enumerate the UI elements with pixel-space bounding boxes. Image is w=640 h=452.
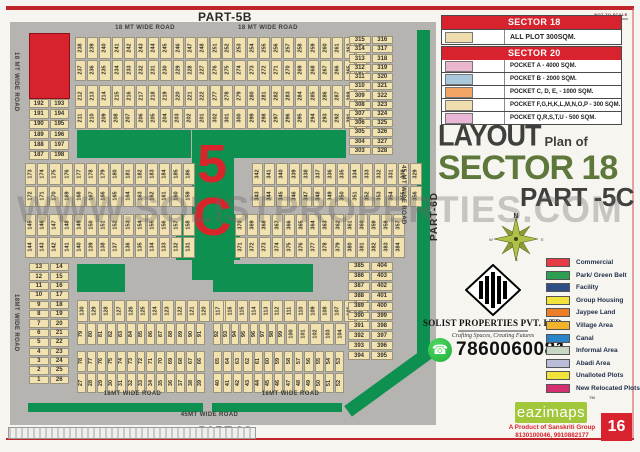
area-label: New Relocated Plots — [576, 385, 640, 392]
plot-142: 142 — [49, 237, 60, 259]
plot-149: 149 — [74, 214, 85, 236]
plot-372: 372 — [247, 237, 258, 259]
sector-part-code-top: 5 — [183, 138, 241, 191]
plot-121: 121 — [187, 300, 198, 322]
plot-279: 279 — [234, 85, 245, 107]
plot-90: 90 — [186, 323, 195, 345]
plot-309: 309 — [349, 91, 371, 99]
area-label: Canal — [576, 335, 594, 342]
plot-286: 286 — [320, 85, 331, 107]
plot-255: 255 — [259, 37, 270, 59]
plot-123: 123 — [162, 300, 173, 322]
pocket-row: POCKET C, D, E, - 1000 SQM. — [442, 85, 621, 98]
plot-146: 146 — [37, 214, 48, 236]
company-subline — [458, 330, 528, 332]
plot-334: 334 — [350, 163, 361, 185]
plot-348: 348 — [313, 186, 324, 208]
plot-76: 76 — [97, 351, 106, 372]
area-legend-row: Informal Area — [546, 346, 640, 355]
plot-38: 38 — [186, 373, 195, 394]
plot-404: 404 — [371, 262, 393, 271]
plot-114: 114 — [249, 300, 260, 322]
plot-377: 377 — [308, 237, 319, 259]
plot-73: 73 — [127, 351, 136, 372]
plot-34: 34 — [146, 373, 155, 394]
plot-361: 361 — [345, 214, 356, 236]
plot-247: 247 — [185, 37, 196, 59]
plot-395: 395 — [371, 351, 393, 360]
sector-part-code-bottom: C — [183, 191, 241, 244]
plot-block-E: 1731741751761771781791801811821831841851… — [25, 163, 170, 207]
plot-43: 43 — [243, 373, 252, 394]
plot-block-D: 2772782792802812822832842852862872882893… — [210, 85, 333, 129]
plot-65: 65 — [213, 351, 222, 372]
plot-346: 346 — [289, 186, 300, 208]
plot-block-F: 3423413403393383373363353343333323313303… — [252, 163, 393, 207]
plot-231: 231 — [148, 60, 159, 82]
plot-251: 251 — [210, 37, 221, 59]
all-plot-swatch — [445, 32, 473, 43]
green-belt — [228, 130, 346, 158]
plot-88: 88 — [166, 323, 175, 345]
plot-25: 25 — [50, 366, 70, 374]
plot-31: 31 — [117, 373, 126, 394]
plot-236: 236 — [87, 60, 98, 82]
pocket-swatch — [445, 61, 473, 72]
area-swatch — [546, 258, 570, 267]
road-label: 18MT WIDE ROAD — [13, 294, 19, 372]
plot-328: 328 — [372, 147, 394, 155]
plot-343: 343 — [252, 186, 263, 208]
plot-241: 241 — [112, 37, 123, 59]
plot-189: 189 — [29, 130, 49, 139]
area-legend-row: Abadi Area — [546, 359, 640, 368]
plot-187: 187 — [29, 151, 49, 160]
pocket-row: POCKET F,G,H,K,L,M,N,O,P - 300 SQM. — [442, 98, 621, 111]
plot-10: 10 — [29, 291, 49, 299]
area-legend-row: Village Area — [546, 321, 640, 330]
plot-316: 316 — [372, 36, 394, 44]
plot-75: 75 — [107, 351, 116, 372]
plot-363: 363 — [320, 214, 331, 236]
plot-127: 127 — [114, 300, 125, 322]
plot-134: 134 — [147, 237, 158, 259]
plot-274: 274 — [234, 60, 245, 82]
plot-148: 148 — [62, 214, 73, 236]
page-number-badge: 16 — [601, 413, 632, 441]
pocket-swatch — [445, 100, 473, 111]
road-label: 18 MT WIDE ROAD — [13, 52, 19, 130]
area-label: Group Housing — [576, 297, 623, 304]
plot-77: 77 — [87, 351, 96, 372]
plot-168: 168 — [74, 186, 85, 208]
pocket-row: POCKET B - 2000 SQM. — [442, 72, 621, 85]
plot-74: 74 — [117, 351, 126, 372]
plot-14: 14 — [50, 263, 70, 271]
plot-344: 344 — [264, 186, 275, 208]
area-legend-row: Canal — [546, 334, 640, 343]
plot-338: 338 — [301, 163, 312, 185]
all-plot-label: ALL PLOT 300SQM. — [505, 34, 621, 41]
plot-164: 164 — [123, 186, 134, 208]
layout-sheet: PART-5B NOT TO SCALE 5 C 238239240241242… — [0, 0, 640, 452]
pocket-row: POCKET A - 4000 SQM. — [442, 60, 621, 72]
plot-298: 298 — [259, 108, 270, 130]
sector-part-code: 5 C — [183, 138, 241, 244]
plot-242: 242 — [124, 37, 135, 59]
plot-362: 362 — [333, 214, 344, 236]
plot-block-A: 2382392402412422432442452462472482492502… — [75, 37, 203, 81]
plot-block-G: 1451461471481491501511521531541551561571… — [25, 214, 170, 258]
plot-233: 233 — [124, 60, 135, 82]
plot-154: 154 — [135, 214, 146, 236]
plot-269: 269 — [295, 60, 306, 82]
plot-393: 393 — [348, 341, 370, 350]
plot-58: 58 — [284, 351, 293, 372]
plot-102: 102 — [310, 323, 321, 345]
plot-157: 157 — [171, 214, 182, 236]
plot-116: 116 — [225, 300, 236, 322]
whatsapp-icon: ☎ — [428, 338, 452, 362]
plot-136: 136 — [123, 237, 134, 259]
plot-140: 140 — [74, 237, 85, 259]
plot-16: 16 — [50, 282, 70, 290]
plot-295: 295 — [295, 108, 306, 130]
area-swatch — [546, 308, 570, 317]
plot-240: 240 — [99, 37, 110, 59]
plot-205: 205 — [148, 108, 159, 130]
plot-64: 64 — [223, 351, 232, 372]
plot-103: 103 — [323, 323, 334, 345]
plot-71: 71 — [146, 351, 155, 372]
plot-84: 84 — [127, 323, 136, 345]
plot-block-B: 2512522532542552562572582592602612622632… — [210, 37, 333, 81]
plot-261: 261 — [332, 37, 343, 59]
trademark-mark: TM — [589, 395, 595, 400]
plot-401: 401 — [371, 292, 393, 301]
plot-96: 96 — [250, 323, 258, 345]
plot-324: 324 — [372, 110, 394, 118]
plot-block-K: 7877767574737271706968676627282930313233… — [77, 351, 205, 393]
plot-174: 174 — [37, 163, 48, 185]
approval-stamp-strip — [8, 427, 256, 439]
plot-350: 350 — [337, 186, 348, 208]
plot-188: 188 — [29, 140, 49, 149]
plot-399: 399 — [371, 312, 393, 321]
plot-97: 97 — [259, 323, 267, 345]
plot-191: 191 — [29, 109, 49, 118]
plot-141: 141 — [62, 237, 73, 259]
area-label: Abadi Area — [576, 360, 610, 367]
plot-385: 385 — [348, 262, 370, 271]
plot-301: 301 — [222, 108, 233, 130]
plot-390: 390 — [348, 312, 370, 321]
plot-13: 13 — [29, 263, 49, 271]
plot-126: 126 — [126, 300, 137, 322]
area-label: Unalloted Plots — [576, 372, 623, 379]
plot-171: 171 — [37, 186, 48, 208]
plot-block-H: 3703693683673663653643633623613603593583… — [235, 214, 393, 258]
plot-303: 303 — [349, 147, 371, 155]
plot-1: 1 — [29, 376, 49, 384]
plot-302: 302 — [210, 108, 221, 130]
plot-165: 165 — [110, 186, 121, 208]
plot-387: 387 — [348, 282, 370, 291]
plot-326: 326 — [372, 128, 394, 136]
plot-7: 7 — [29, 319, 49, 327]
pocket-label: POCKET A - 4000 SQM. — [505, 63, 621, 69]
plot-129: 129 — [89, 300, 100, 322]
plot-198: 198 — [50, 151, 70, 160]
plot-161: 161 — [159, 186, 170, 208]
plot-281: 281 — [259, 85, 270, 107]
plot-192: 192 — [29, 99, 49, 108]
green-belt — [77, 264, 125, 292]
plot-62: 62 — [243, 351, 252, 372]
green-belt — [213, 264, 313, 292]
plot-124: 124 — [150, 300, 161, 322]
plot-190: 190 — [29, 120, 49, 129]
plot-400: 400 — [371, 302, 393, 311]
plot-59: 59 — [274, 351, 283, 372]
plot-273: 273 — [247, 60, 258, 82]
plot-212: 212 — [75, 85, 86, 107]
plot-267: 267 — [320, 60, 331, 82]
plot-11: 11 — [29, 282, 49, 290]
plot-329: 329 — [410, 163, 421, 185]
plot-35: 35 — [156, 373, 165, 394]
area-swatch — [546, 384, 570, 393]
plot-24: 24 — [50, 357, 70, 365]
plot-150: 150 — [86, 214, 97, 236]
plot-49: 49 — [304, 373, 313, 394]
plot-193: 193 — [50, 99, 70, 108]
plot-206: 206 — [136, 108, 147, 130]
area-swatch — [546, 359, 570, 368]
plot-92: 92 — [213, 323, 221, 345]
plot-53: 53 — [335, 351, 344, 372]
plot-388: 388 — [348, 292, 370, 301]
area-swatch — [546, 321, 570, 330]
plot-111: 111 — [284, 300, 295, 322]
plot-94: 94 — [231, 323, 239, 345]
plot-69: 69 — [166, 351, 175, 372]
plot-260: 260 — [320, 37, 331, 59]
plot-70: 70 — [156, 351, 165, 372]
plot-389: 389 — [348, 302, 370, 311]
plot-333: 333 — [362, 163, 373, 185]
plot-353: 353 — [374, 186, 385, 208]
plot-86: 86 — [146, 323, 155, 345]
plot-156: 156 — [159, 214, 170, 236]
plot-313: 313 — [349, 54, 371, 62]
title-sector: SECTOR 18 — [438, 151, 634, 185]
plot-245: 245 — [160, 37, 171, 59]
plot-52: 52 — [335, 373, 344, 394]
plot-67: 67 — [186, 351, 195, 372]
plot-219: 219 — [160, 85, 171, 107]
plot-220: 220 — [173, 85, 184, 107]
plot-5: 5 — [29, 338, 49, 346]
pocket-label: POCKET F,G,H,K,L,M,N,O,P - 300 SQM. — [505, 102, 621, 108]
plot-304: 304 — [349, 138, 371, 146]
plot-364: 364 — [308, 214, 319, 236]
plot-22: 22 — [50, 338, 70, 346]
company-block: SOLIST PROPERTIES PVT. LTD. Crafting Spa… — [423, 264, 563, 339]
plot-308: 308 — [349, 101, 371, 109]
plot-block-L: 6564636261605958575655545340414243444546… — [213, 351, 344, 393]
area-legend-row: Park/ Green Belt — [546, 271, 640, 280]
plot-217: 217 — [136, 85, 147, 107]
green-belt — [28, 403, 203, 412]
plot-135: 135 — [135, 237, 146, 259]
area-swatch — [546, 334, 570, 343]
plot-185: 185 — [171, 163, 182, 185]
plot-378: 378 — [320, 237, 331, 259]
company-name: SOLIST PROPERTIES PVT. LTD. — [423, 318, 563, 328]
plot-29: 29 — [97, 373, 106, 394]
plot-322: 322 — [372, 91, 394, 99]
plot-108: 108 — [320, 300, 331, 322]
plot-259: 259 — [308, 37, 319, 59]
area-legend-row: Commercial — [546, 258, 640, 267]
plot-120: 120 — [199, 300, 210, 322]
plot-15: 15 — [50, 272, 70, 280]
plot-276: 276 — [210, 60, 221, 82]
plot-332: 332 — [374, 163, 385, 185]
plot-307: 307 — [349, 110, 371, 118]
plot-19: 19 — [50, 310, 70, 318]
plot-95: 95 — [240, 323, 248, 345]
plot-155: 155 — [147, 214, 158, 236]
plot-63: 63 — [233, 351, 242, 372]
plot-36: 36 — [166, 373, 175, 394]
plot-325: 325 — [372, 119, 394, 127]
plot-93: 93 — [222, 323, 230, 345]
area-legend-row: Unalloted Plots — [546, 371, 640, 380]
plot-293: 293 — [320, 108, 331, 130]
plot-56: 56 — [304, 351, 313, 372]
plot-323: 323 — [372, 101, 394, 109]
plot-28: 28 — [87, 373, 96, 394]
plot-306: 306 — [349, 119, 371, 127]
plot-366: 366 — [284, 214, 295, 236]
plot-352: 352 — [362, 186, 373, 208]
plot-55: 55 — [315, 351, 324, 372]
plot-339: 339 — [289, 163, 300, 185]
plot-166: 166 — [98, 186, 109, 208]
plot-72: 72 — [137, 351, 146, 372]
plot-80: 80 — [87, 323, 96, 345]
plot-179: 179 — [98, 163, 109, 185]
plot-110: 110 — [296, 300, 307, 322]
plot-375: 375 — [284, 237, 295, 259]
title-plan-of: Plan of — [545, 134, 588, 149]
plot-47: 47 — [284, 373, 293, 394]
plot-183: 183 — [147, 163, 158, 185]
plot-203: 203 — [172, 108, 183, 130]
plot-113: 113 — [261, 300, 272, 322]
plot-197: 197 — [50, 140, 70, 149]
plot-256: 256 — [271, 37, 282, 59]
plot-139: 139 — [86, 237, 97, 259]
plot-258: 258 — [295, 37, 306, 59]
plot-337: 337 — [313, 163, 324, 185]
sector20-legend-table: SECTOR 20 POCKET A - 4000 SQM.POCKET B -… — [441, 46, 622, 125]
plot-312: 312 — [349, 64, 371, 72]
plot-194: 194 — [50, 109, 70, 118]
area-legend-row: Group Housing — [546, 296, 640, 305]
area-swatch — [546, 283, 570, 292]
plot-347: 347 — [301, 186, 312, 208]
plot-50: 50 — [315, 373, 324, 394]
plot-239: 239 — [87, 37, 98, 59]
plot-178: 178 — [86, 163, 97, 185]
plot-202: 202 — [184, 108, 195, 130]
plot-248: 248 — [197, 37, 208, 59]
plot-169: 169 — [62, 186, 73, 208]
plot-232: 232 — [136, 60, 147, 82]
plot-336: 336 — [325, 163, 336, 185]
plot-196: 196 — [50, 130, 70, 139]
plot-296: 296 — [283, 108, 294, 130]
plot-379: 379 — [333, 237, 344, 259]
plot-122: 122 — [175, 300, 186, 322]
title-block: LAYOUT Plan of SECTOR 18 PART -5C — [438, 122, 634, 210]
plot-173: 173 — [25, 163, 36, 185]
plot-403: 403 — [371, 272, 393, 281]
plot-130: 130 — [77, 300, 88, 322]
plot-layout-map: 5 C 238239240241242243244245246247248249… — [10, 22, 436, 425]
plot-252: 252 — [222, 37, 233, 59]
road-label: 18MT WIDE ROAD — [253, 391, 328, 397]
plot-327: 327 — [372, 138, 394, 146]
plot-195: 195 — [50, 120, 70, 129]
plot-78: 78 — [77, 351, 86, 372]
pocket-swatch — [445, 74, 473, 85]
road-label: 45 MT WIDE ROAD — [400, 165, 406, 243]
plot-382: 382 — [369, 237, 380, 259]
plot-341: 341 — [264, 163, 275, 185]
plot-82: 82 — [107, 323, 116, 345]
plot-32: 32 — [127, 373, 136, 394]
plot-143: 143 — [37, 237, 48, 259]
plot-163: 163 — [135, 186, 146, 208]
plot-214: 214 — [99, 85, 110, 107]
road-label: 18 MT WIDE ROAD — [228, 25, 308, 31]
plot-pair-block-P1: 192193191194190195189196188197187198 — [29, 99, 69, 160]
plot-398: 398 — [371, 321, 393, 330]
plot-402: 402 — [371, 282, 393, 291]
area-color-legend: CommercialPark/ Green BeltFacilityGroup … — [546, 258, 640, 397]
plot-133: 133 — [159, 237, 170, 259]
area-swatch — [546, 346, 570, 355]
plot-272: 272 — [259, 60, 270, 82]
plot-144: 144 — [25, 237, 36, 259]
plot-61: 61 — [254, 351, 263, 372]
plot-145: 145 — [25, 214, 36, 236]
plot-151: 151 — [98, 214, 109, 236]
plot-block-I: 1301291281271261251241231221211201191187… — [77, 300, 205, 345]
plot-83: 83 — [117, 323, 126, 345]
plot-42: 42 — [233, 373, 242, 394]
plot-305: 305 — [349, 128, 371, 136]
plot-356: 356 — [410, 186, 421, 208]
plot-342: 342 — [252, 163, 263, 185]
plot-275: 275 — [222, 60, 233, 82]
plot-315: 315 — [349, 36, 371, 44]
plot-4: 4 — [29, 348, 49, 356]
